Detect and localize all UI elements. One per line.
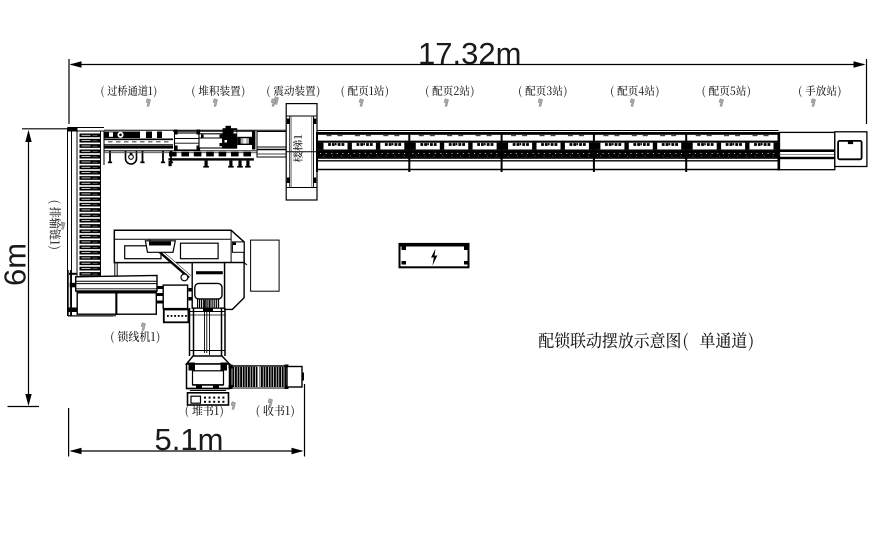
- svg-text:5.1m: 5.1m: [155, 422, 224, 457]
- svg-text:6m: 6m: [0, 243, 33, 286]
- svg-text:17.32m: 17.32m: [418, 36, 521, 71]
